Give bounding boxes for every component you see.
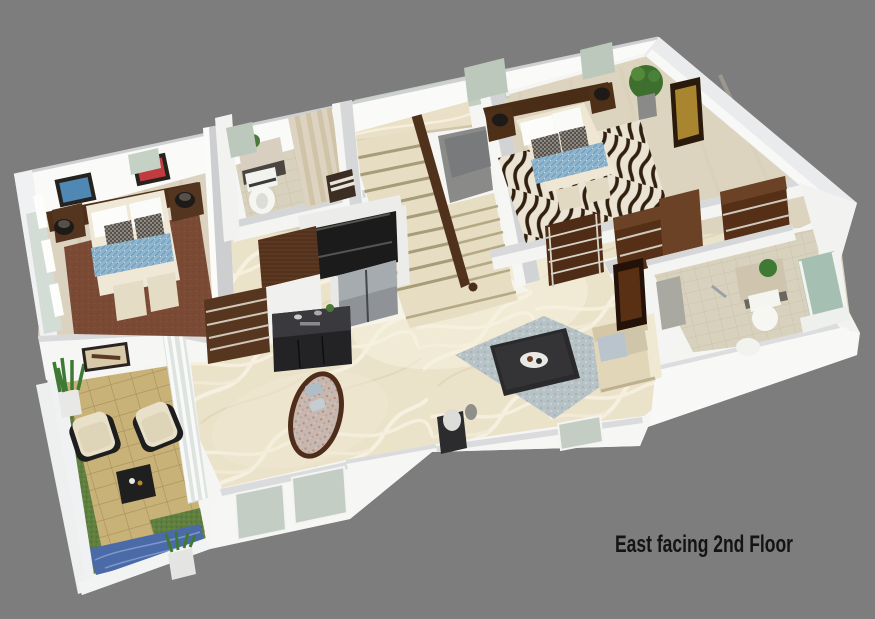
svg-text:East facing 2nd Floor: East facing 2nd Floor [615,531,793,558]
